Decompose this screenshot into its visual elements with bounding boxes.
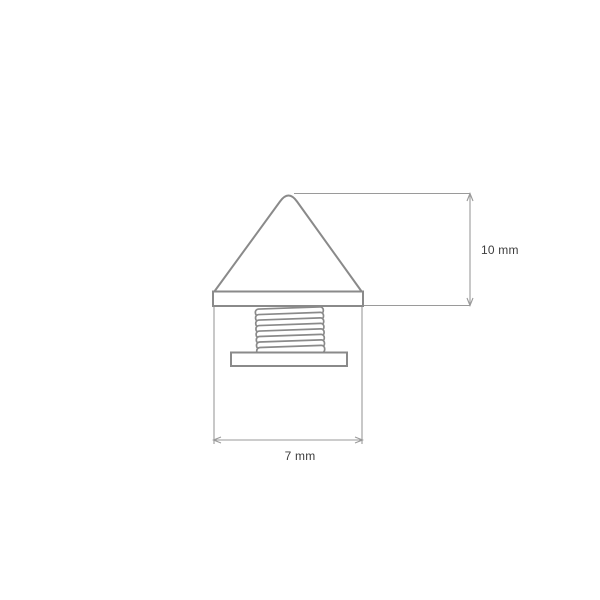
washer-plate [231,353,347,367]
height-dimension-label: 10 mm [481,243,519,257]
threaded-stud [255,307,325,355]
dimension-lines [214,194,474,445]
base-plate [213,292,363,307]
spike-technical-drawing: 10 mm 7 mm [0,0,600,600]
width-dimension-label: 7 mm [285,449,316,463]
spike-part-outlines [213,196,363,367]
technical-drawing-page: 10 mm 7 mm [0,0,600,600]
cone-spike-outline [214,196,362,293]
